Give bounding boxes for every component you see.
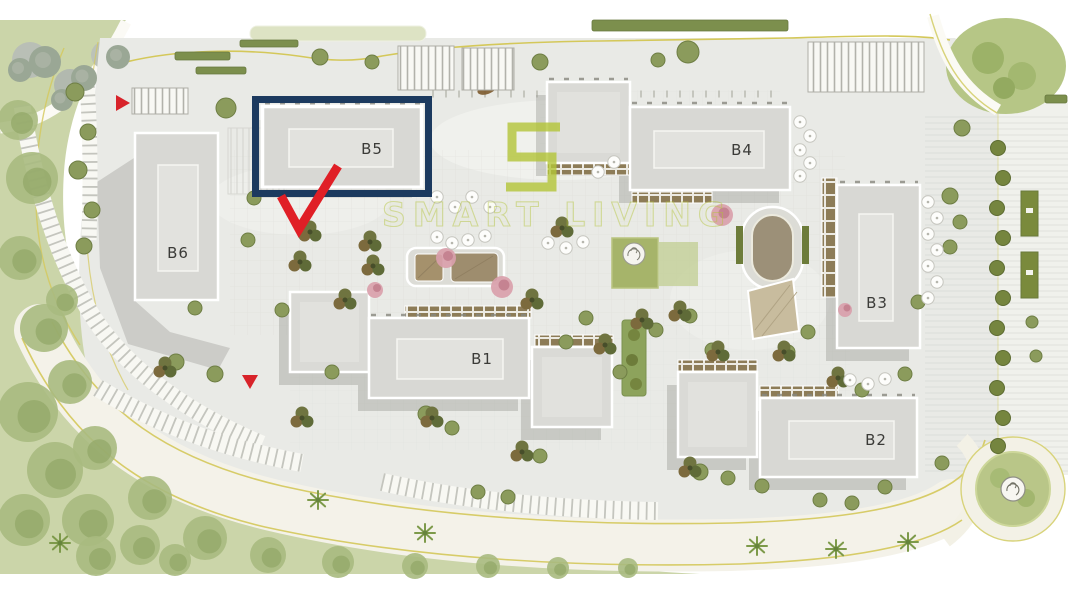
building-label-b6: B6	[167, 244, 189, 262]
bench-planter	[1021, 191, 1038, 236]
roundabout-garden	[961, 437, 1065, 541]
building-unlabeled-right	[678, 372, 757, 457]
roundabout-sculpture	[1001, 477, 1025, 501]
shade-canopy	[748, 279, 799, 339]
screenshot-canvas: B6 B4 B3 B1	[0, 0, 1069, 600]
building-b5: B5	[263, 107, 421, 187]
building-b6: B6	[135, 133, 218, 300]
building-b1: B1	[369, 318, 529, 398]
building-b3: B3	[837, 185, 920, 348]
building-unlabeled-left	[290, 292, 369, 372]
watermark-text: SMART LIVING	[382, 195, 732, 234]
building-label-b4: B4	[731, 141, 753, 159]
building-label-b3: B3	[866, 294, 888, 312]
top-pool-band	[250, 26, 426, 41]
building-label-b5: B5	[361, 140, 383, 158]
building-unlabeled-center	[532, 347, 612, 427]
site-plan-image: B6 B4 B3 B1	[0, 0, 1069, 600]
building-b2: B2	[760, 398, 917, 477]
building-label-b1: B1	[471, 350, 493, 368]
plaza-sculpture	[623, 243, 645, 265]
building-b4: B4	[630, 107, 790, 190]
building-label-b2: B2	[865, 431, 887, 449]
